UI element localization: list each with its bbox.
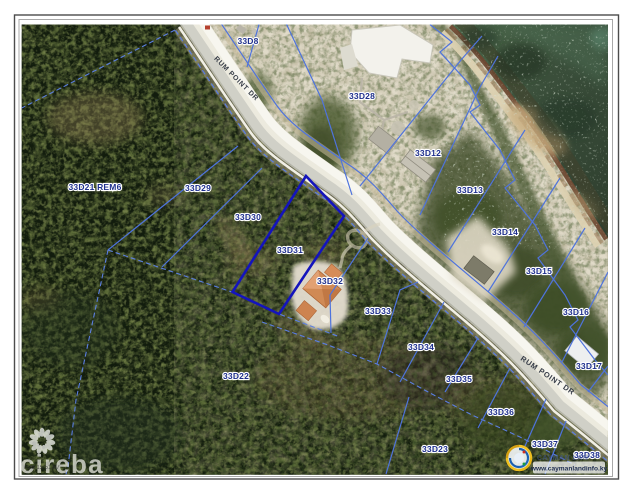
svg-text:33D36: 33D36: [488, 407, 514, 417]
svg-text:33D37: 33D37: [532, 439, 558, 449]
svg-text:cireba: cireba: [20, 449, 104, 479]
svg-text:33D16: 33D16: [563, 307, 589, 317]
svg-text:33D8: 33D8: [237, 36, 258, 46]
svg-text:33D15: 33D15: [526, 266, 552, 276]
svg-text:33D14: 33D14: [492, 227, 518, 237]
svg-text:33D21 REM6: 33D21 REM6: [68, 182, 121, 192]
svg-text:33D28: 33D28: [349, 91, 375, 101]
svg-text:33D30: 33D30: [235, 212, 261, 222]
svg-text:33D12: 33D12: [415, 148, 441, 158]
svg-text:CAYMAN LAN: CAYMAN LAN: [537, 455, 588, 462]
svg-text:33D23: 33D23: [422, 444, 448, 454]
svg-text:33D34: 33D34: [408, 342, 434, 352]
svg-text:33D35: 33D35: [446, 374, 472, 384]
svg-text:33D22: 33D22: [223, 371, 249, 381]
svg-text:7/26 15 51 67: 7/26 15 51 67: [23, 465, 60, 471]
svg-text:33D31: 33D31: [277, 245, 303, 255]
svg-text:33D29: 33D29: [185, 183, 211, 193]
svg-text:33D13: 33D13: [457, 185, 483, 195]
svg-text:33D33: 33D33: [365, 306, 391, 316]
svg-text:33D32: 33D32: [317, 276, 343, 286]
svg-text:www.caymanlandinfo.ky: www.caymanlandinfo.ky: [530, 466, 608, 473]
svg-text:33D17: 33D17: [576, 361, 602, 371]
